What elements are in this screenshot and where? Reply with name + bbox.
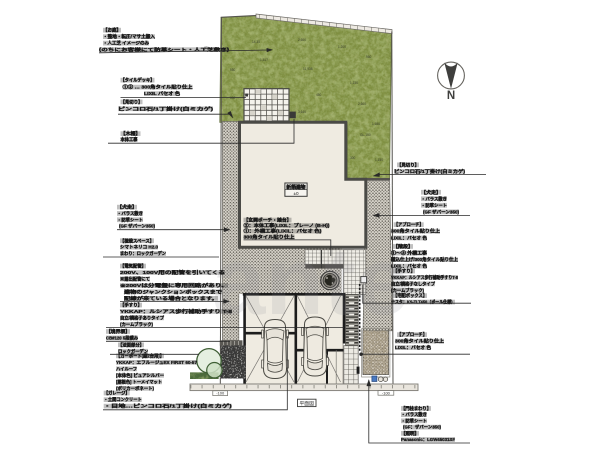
svg-text:【電気配管】: 【電気配管】 (120, 263, 146, 270)
svg-text:【境界塀】: 【境界塀】 (106, 328, 130, 335)
svg-text:-100: -100 (382, 390, 391, 395)
svg-text:Panasonic：LGW45031SF: Panasonic：LGW45031SF (401, 437, 455, 442)
svg-text:N: N (447, 90, 455, 102)
svg-text:ピンコロ石/1丁掛け(白ミカゲ): ピンコロ石/1丁掛け(白ミカゲ) (118, 105, 214, 112)
svg-text:300角タイル貼り仕上: 300角タイル貼り仕上 (391, 228, 441, 235)
svg-text:±0: ±0 (293, 191, 299, 196)
svg-text:【お庭】: 【お庭】 (103, 27, 121, 34)
svg-text:【アプローチ】: 【アプローチ】 (397, 331, 427, 338)
svg-text:①〜③ 外構工事: ①〜③ 外構工事 (391, 250, 428, 257)
svg-text:-100: -100 (216, 391, 225, 396)
svg-text:・目地…ピンコロ石/1丁掛け(白ミカゲ): ・目地…ピンコロ石/1丁掛け(白ミカゲ) (104, 403, 233, 410)
svg-text:【法面部分】: 【法面部分】 (118, 341, 144, 348)
svg-text:【カーポート(縦2台用)】: 【カーポート(縦2台用)】 (116, 352, 164, 359)
svg-text:シマトネリコ H2.0: シマトネリコ H2.0 (120, 244, 159, 251)
svg-text:(GF ザバーン350): (GF ザバーン350) (119, 223, 156, 230)
svg-text:【タイルデッキ】: 【タイルデッキ】 (121, 77, 155, 84)
svg-text:【ガレージ】: 【ガレージ】 (104, 390, 130, 397)
svg-text:LIXIL バセオ 色: LIXIL バセオ 色 (144, 90, 181, 97)
svg-text:【宅配ボックス】: 【宅配ボックス】 (393, 292, 427, 299)
svg-text:(カームブラック): (カームブラック) (120, 321, 154, 328)
svg-text:【階段】: 【階段】 (393, 243, 413, 250)
svg-text:本体工事: 本体工事 (121, 136, 139, 143)
svg-text:・防草シート: ・防草シート (401, 417, 427, 424)
svg-text:・整地・転圧/マサ土搬入: ・整地・転圧/マサ土搬入 (103, 33, 156, 40)
svg-text:※200Vは分電盤に専用回路があり、: ※200Vは分電盤に専用回路があり、 (120, 282, 228, 289)
svg-text:200V、100V用の配管を引いてくる: 200V、100V用の配管を引いてくる (120, 269, 225, 276)
svg-text:・バラス敷き: ・バラス敷き (401, 411, 427, 418)
svg-text:【アプローチ】: 【アプローチ】 (394, 221, 424, 228)
svg-text:自立/横格子ありタイプ: 自立/横格子ありタイプ (120, 314, 165, 321)
svg-text:・防草シート: ・防草シート (421, 202, 447, 209)
svg-text:【見切り】: 【見切り】 (121, 98, 143, 105)
svg-text:[屋根色] トーメイマット: [屋根色] トーメイマット (116, 378, 162, 385)
svg-text:・バラス敷き: ・バラス敷き (117, 210, 143, 217)
svg-text:ante: ante (212, 228, 409, 335)
svg-text:・防草シート: ・防草シート (117, 216, 143, 223)
svg-text:ピンコロ石/1丁掛け(白ミカゲ): ピンコロ石/1丁掛け(白ミカゲ) (394, 168, 466, 175)
svg-text:960: 960 (366, 55, 372, 59)
svg-text:【犬走】: 【犬走】 (421, 189, 441, 196)
svg-text:600: 600 (230, 96, 236, 100)
svg-text:(カームブラック): (カームブラック) (391, 287, 425, 294)
svg-text:450: 450 (316, 93, 322, 97)
svg-text:2,600: 2,600 (358, 102, 366, 106)
svg-text:・バラス敷き: ・バラス敷き (421, 195, 447, 202)
svg-text:自立/横格子なしタイプ: 自立/横格子なしタイプ (391, 280, 436, 287)
svg-text:平面図: 平面図 (299, 401, 314, 407)
svg-text:3,640: 3,640 (298, 110, 306, 114)
svg-text:YKKAP：ルシアス歩行補助手すり T-8: YKKAP：ルシアス歩行補助手すり T-8 (120, 308, 233, 315)
svg-text:300角タイル貼り仕上: 300角タイル貼り仕上 (395, 338, 445, 345)
svg-text:1,200: 1,200 (338, 45, 346, 49)
svg-text:まわり：ロックガーデン: まわり：ロックガーデン (120, 250, 167, 257)
svg-text:GL-150: GL-150 (360, 133, 371, 137)
svg-text:11,938: 11,938 (303, 67, 313, 71)
svg-text:2,600: 2,600 (298, 38, 306, 42)
svg-text:[本体色] ピュアシルバー: [本体色] ピュアシルバー (116, 372, 165, 379)
svg-text:YKKAP：ルシアス歩行補助手すりT-8: YKKAP：ルシアス歩行補助手すりT-8 (391, 274, 458, 281)
svg-text:(GF ザバーン350): (GF ザバーン350) (423, 208, 460, 215)
svg-text:【見切り】: 【見切り】 (397, 161, 419, 168)
svg-text:1,150: 1,150 (350, 81, 358, 85)
svg-text:ナスタ：KS-TLT450（ポール仕様）: ナスタ：KS-TLT450（ポール仕様） (391, 299, 455, 306)
svg-text:【植栽スペース】: 【植栽スペース】 (120, 237, 154, 244)
svg-text:・人工芝 イメージのみ: ・人工芝 イメージのみ (103, 40, 150, 47)
svg-text:1,150: 1,150 (375, 158, 383, 162)
svg-text:LIXIL：バセオ 色: LIXIL：バセオ 色 (395, 344, 432, 351)
svg-text:CB#120 5段積み: CB#120 5段積み (106, 335, 139, 342)
svg-text:300: 300 (350, 156, 356, 160)
svg-text:・土間コンクリート: ・土間コンクリート (104, 396, 142, 403)
svg-text:(B): (B) (204, 46, 209, 50)
svg-text:14,35: 14,35 (252, 40, 260, 44)
svg-text:①② … 300角タイル貼り仕上: ①② … 300角タイル貼り仕上 (123, 84, 194, 91)
svg-text:【門柱まわり】: 【門柱まわり】 (401, 405, 431, 412)
svg-text:(GF：ザバーン350): (GF：ザバーン350) (403, 424, 442, 431)
svg-text:【照明】: 【照明】 (401, 430, 419, 437)
svg-text:建物のジャンクションボックスまで: 建物のジャンクションボックスまで (123, 288, 223, 295)
svg-text:950: 950 (230, 68, 236, 72)
svg-text:【手すり】: 【手すり】 (393, 268, 415, 275)
svg-text:新築建物: 新築建物 (286, 184, 305, 191)
svg-text:LIXIL：バセオ 色: LIXIL：バセオ 色 (391, 235, 428, 242)
svg-text:※露出配管にて: ※露出配管にて (120, 276, 150, 283)
svg-text:【手すり】: 【手すり】 (120, 302, 142, 309)
svg-text:1,656: 1,656 (372, 122, 380, 126)
svg-text:300角タイル貼り仕上: 300角タイル貼り仕上 (244, 233, 296, 240)
svg-text:【木柵】: 【木柵】 (121, 130, 141, 137)
svg-text:蹴込仕上げ/300角タイル貼り仕上: 蹴込仕上げ/300角タイル貼り仕上 (391, 256, 459, 263)
svg-text:配線が来ている場合となります。: 配線が来ている場合となります。 (124, 295, 218, 302)
svg-text:1,517: 1,517 (260, 58, 268, 62)
svg-text:【犬走】: 【犬走】 (117, 204, 137, 211)
